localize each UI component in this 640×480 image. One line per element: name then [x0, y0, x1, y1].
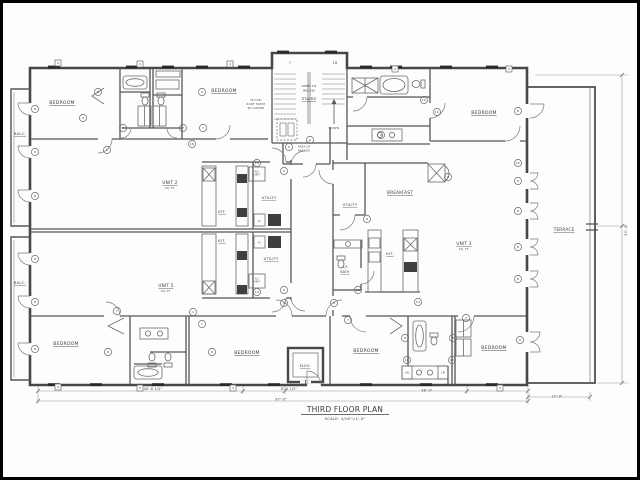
- wall-tag-number: 4: [394, 67, 396, 71]
- stair-grid-number-16: 16: [333, 61, 338, 65]
- floor-plan-drawing: BEDROOMBEDROOMBEDROOMBEDROOMBEDROOMBEDRO…: [0, 0, 640, 480]
- door-tag-number: 8: [34, 347, 36, 351]
- room-label-unit-5-area: SQ. FT.: [161, 289, 171, 293]
- room-label-unit-2: UNIT 2: [162, 180, 177, 185]
- wall-tag-number: 4: [499, 386, 501, 390]
- wall-tag-number: 4: [232, 386, 234, 390]
- dim-30-0: 30'-0": [624, 224, 628, 236]
- wall-tag-number: 4: [139, 62, 141, 66]
- door-tag-number: 10: [356, 288, 360, 292]
- door-tag-number: 8: [452, 336, 454, 340]
- ac-unit-note-1b: UNIT: [254, 174, 260, 177]
- door-tag-number: 9: [380, 133, 382, 137]
- room-label-unit-2-area: SQ. FT.: [165, 186, 175, 190]
- door-tag-number: 7: [201, 322, 203, 326]
- roof-hatch-note-3: W/ LADDER: [248, 106, 265, 110]
- door-tag-number: 9: [283, 169, 285, 173]
- room-label-bedroom-bottom-mid: BEDROOM: [234, 350, 259, 356]
- door-tag-number: 8: [404, 336, 406, 340]
- door-tag-number: 5: [283, 301, 285, 305]
- linen-label-2: LN: [441, 371, 445, 375]
- stair-grid-number-7: 7: [289, 61, 291, 65]
- door-tag-number: 10: [405, 358, 409, 362]
- stair-label: STAIRS: [302, 96, 317, 101]
- door-tag-number: 8: [517, 179, 519, 183]
- wall-tag-number: 4: [508, 67, 510, 71]
- door-tag-number: 10: [450, 358, 454, 362]
- room-label-bedroom-top-left: BEDROOM: [49, 100, 74, 106]
- dim-8-4-half: 8'-4 1/2": [281, 387, 298, 391]
- ac-unit-note-2b: UNIT: [254, 281, 260, 284]
- wall-tag-number: 4: [229, 62, 231, 66]
- door-tag-number: 8: [34, 150, 36, 154]
- door-tag-number: 8: [519, 338, 521, 342]
- door-tag-number: 7: [347, 318, 349, 322]
- door-tag-number: 8: [517, 109, 519, 113]
- room-label-unit-5: UNIT 5: [158, 283, 173, 288]
- door-tag-number: 9: [82, 116, 84, 120]
- room-label-kitchen-1: KIT.: [218, 209, 226, 214]
- room-label-terrace: TERRACE: [553, 227, 575, 232]
- room-label-bedroom-top-mid: BEDROOM: [211, 88, 236, 94]
- door-tag-number: 6: [333, 301, 335, 305]
- floor-plan-svg: BEDROOMBEDROOMBEDROOMBEDROOMBEDROOMBEDRO…: [0, 0, 640, 480]
- door-tag-number: 8: [517, 277, 519, 281]
- room-label-elevator: ELEV.: [300, 364, 311, 368]
- door-tag-number: 8: [34, 107, 36, 111]
- room-label-breakfast: BREAKFAST: [387, 190, 413, 195]
- door-tag-number: 1: [106, 148, 108, 152]
- door-tag-number: 8: [211, 350, 213, 354]
- door-tag-number: 6: [447, 175, 449, 179]
- linen-label-1: LN: [405, 371, 409, 375]
- door-tag-number: 14: [416, 300, 420, 304]
- door-tag-number: 8: [517, 209, 519, 213]
- door-tag-number: 12: [255, 161, 259, 165]
- dim-40-6-half: 40'-6 1/2": [144, 387, 163, 391]
- room-label-half-bath-1: 1/2: [342, 265, 348, 269]
- door-tag-number: 8: [34, 257, 36, 261]
- stair-note-below: BELOW: [303, 89, 315, 93]
- dim-12-0: 12'-0": [551, 395, 563, 399]
- door-tag-number: 15: [516, 161, 520, 165]
- room-label-utility-1: UTILITY: [262, 196, 277, 200]
- door-tag-number: 7: [116, 309, 118, 313]
- door-tag-number: 9: [366, 217, 368, 221]
- door-tag-number: 4: [309, 138, 311, 142]
- dim-36-0: 36'-0": [421, 389, 433, 393]
- door-tag-number: 7: [122, 126, 124, 130]
- door-tag-number: 7: [182, 126, 184, 130]
- door-tag-number: 8: [107, 350, 109, 354]
- door-tag-number: 7: [202, 126, 204, 130]
- room-label-unit-3-area: SQ. FT.: [459, 247, 469, 251]
- wall-tag-number: 4: [57, 385, 59, 389]
- area-of-refuge-note-2: REFUGE: [298, 149, 310, 153]
- door-tag-number: 10: [422, 98, 426, 102]
- drawing-scale: SCALE: 3/16"=1'-0": [325, 416, 366, 421]
- door-tag-number: 8: [34, 194, 36, 198]
- drawing-title: THIRD FLOOR PLAN: [306, 405, 383, 414]
- dim-97-0: 97'-0": [275, 398, 287, 402]
- room-label-bedroom-bottom-right: BEDROOM: [353, 348, 378, 354]
- area-of-refuge-note-1: AREA OF: [298, 145, 311, 149]
- room-label-bedroom-bottom-far-right: BEDROOM: [481, 345, 506, 351]
- door-tag-number: 5: [288, 145, 290, 149]
- roof-hatch-note-1: 36"x36": [250, 98, 262, 102]
- room-label-unit-3: UNIT 3: [456, 241, 471, 246]
- room-label-kitchen-3: KIT.: [386, 251, 394, 256]
- door-tag-number: 8: [517, 245, 519, 249]
- wall-tag-number: 4: [139, 386, 141, 390]
- roof-hatch-note-2: ROOF HATCH: [247, 102, 266, 106]
- room-label-half-bath-2: BATH: [340, 270, 350, 274]
- door-tag-number: 12: [255, 290, 259, 294]
- door-tag-number: 6: [201, 90, 203, 94]
- room-label-balcony-1: BALC.: [14, 131, 26, 136]
- room-label-bedroom-top-right: BEDROOM: [471, 110, 496, 116]
- stair-note-down: DOWN: [329, 126, 339, 130]
- room-label-kitchen-2: KIT.: [218, 238, 226, 243]
- room-label-balcony-2: BALC.: [14, 280, 26, 285]
- door-tag-number: 9: [283, 288, 285, 292]
- stair-note-open-to: OPEN TO: [302, 84, 317, 88]
- door-tag-number: 7: [465, 316, 467, 320]
- room-label-bedroom-bottom-left: BEDROOM: [53, 341, 78, 347]
- room-label-utility-2: UTILITY: [264, 257, 279, 261]
- door-tag-number: 16: [190, 142, 194, 146]
- door-tag-number: 4: [192, 310, 194, 314]
- door-tag-number: 10: [435, 110, 439, 114]
- door-tag-number: 8: [34, 300, 36, 304]
- door-tag-number: 6: [97, 90, 99, 94]
- wall-tag-number: 4: [57, 61, 59, 65]
- room-label-utility-3: UTILITY: [343, 203, 358, 207]
